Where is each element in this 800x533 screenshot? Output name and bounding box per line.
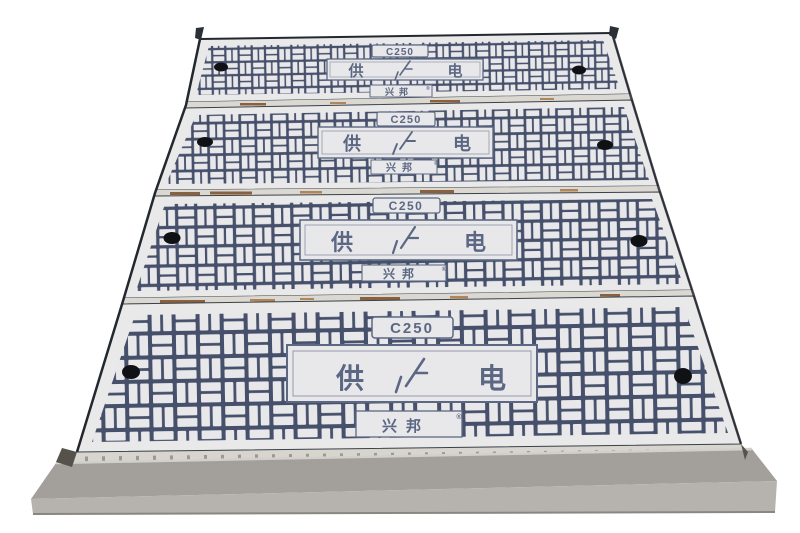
rust-stain: [300, 298, 314, 300]
nameplate-char-right: 电: [478, 363, 506, 394]
rust-stain: [450, 296, 468, 299]
rust-stain: [560, 189, 578, 192]
bolt-hole: [197, 137, 213, 147]
brand-text: 兴邦: [386, 161, 418, 174]
trench-cover: C250 供 电 兴邦 ®: [186, 33, 630, 102]
load-class-plate: C250: [372, 45, 428, 58]
registered-mark: ®: [456, 413, 462, 421]
nameplate-char-right: 电: [447, 62, 462, 80]
trench-cover: C250 供 电 兴邦 ®: [156, 100, 658, 190]
nameplate-char-left: 供: [342, 133, 361, 154]
rust-stain: [600, 294, 620, 297]
nameplate-char-right: 电: [464, 230, 486, 255]
rust-stain: [250, 299, 275, 302]
nameplate: 供 电: [327, 59, 483, 80]
brand-plate: 兴邦 ®: [356, 411, 462, 437]
load-class-text: C250: [386, 47, 414, 58]
bolt-hole: [214, 63, 228, 72]
bolt-hole: [674, 368, 692, 384]
bolt-hole: [164, 232, 181, 244]
nameplate-char-left: 供: [347, 62, 363, 80]
trench-cover-scene: C250 供 电 兴邦 ® C250: [0, 0, 800, 533]
rust-stain: [430, 100, 460, 103]
bolt-hole: [122, 365, 140, 379]
bolt-hole: [597, 140, 613, 150]
brand-plate: 兴邦 ®: [370, 85, 432, 97]
load-class-plate: C250: [372, 317, 453, 338]
trench-cover: C250 供 电 兴邦 ®: [77, 296, 741, 452]
load-class-text: C250: [390, 114, 421, 126]
rust-stain: [170, 192, 200, 195]
brand-text: 兴邦: [382, 417, 430, 435]
rust-stain: [420, 190, 454, 193]
brand-text: 兴邦: [385, 86, 413, 97]
registered-mark: ®: [434, 160, 438, 167]
steel-frame: [31, 444, 777, 514]
trench-cover: C250 供 电 兴邦 ®: [124, 192, 692, 298]
rust-stain: [300, 191, 322, 194]
brand-plate: 兴邦 ®: [371, 160, 438, 174]
brand-text: 兴邦: [383, 266, 421, 281]
nameplate-char-left: 供: [330, 230, 353, 255]
rust-stain: [330, 102, 346, 104]
nameplate: 供 电: [318, 127, 493, 158]
bolt-hole: [631, 235, 648, 247]
rust-stain: [540, 98, 554, 100]
load-class-plate: C250: [373, 198, 440, 213]
brand-plate: 兴邦 ®: [362, 265, 447, 281]
rust-stain: [360, 297, 400, 300]
load-class-text: C250: [390, 320, 434, 337]
registered-mark: ®: [442, 266, 447, 273]
nameplate-char-left: 供: [335, 363, 364, 394]
nameplate: 供 电: [287, 345, 537, 402]
rust-stain: [210, 192, 252, 195]
load-class-text: C250: [389, 199, 424, 213]
rust-stain: [240, 103, 266, 106]
nameplate-char-right: 电: [453, 133, 471, 154]
product-photo: C250 供 电 兴邦 ® C250: [0, 0, 800, 533]
load-class-plate: C250: [377, 112, 435, 126]
bolt-hole: [572, 66, 586, 75]
registered-mark: ®: [426, 85, 430, 92]
nameplate: 供 电: [300, 220, 517, 260]
